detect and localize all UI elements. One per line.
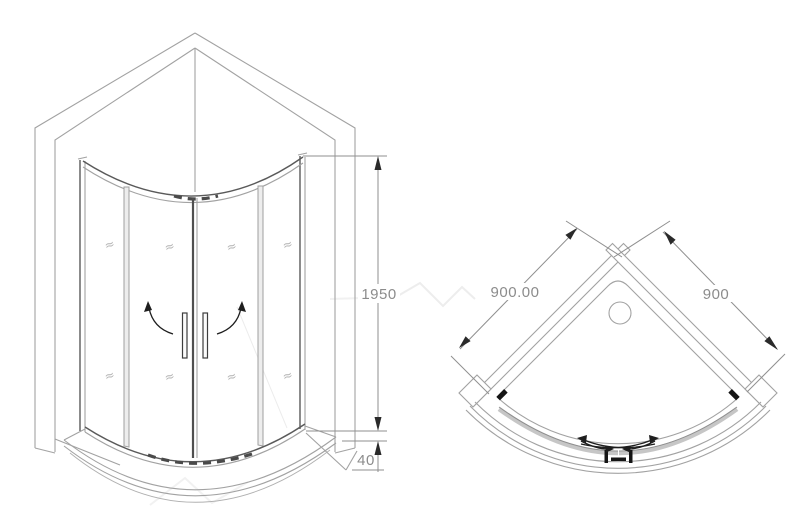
dimension-arrow-up	[375, 441, 382, 455]
glass-mark-icon: ≈	[103, 236, 117, 252]
glass-mark-icon: ≈	[281, 367, 295, 383]
watermark	[150, 283, 475, 505]
plan-left-wall	[468, 244, 631, 407]
door-swing-arrow-left	[149, 308, 173, 334]
right-wall-inner-edge	[195, 48, 335, 452]
width-right-dimension-label: 900	[703, 286, 730, 303]
glass-mark-icon: ≈	[281, 236, 295, 252]
front-view: ≈ ≈ ≈ ≈ ≈ ≈ ≈ ≈ 1950	[35, 33, 400, 502]
glass-mark-icon: ≈	[103, 367, 117, 383]
floor-line-left	[55, 439, 120, 465]
dimension-tray-height: 40	[306, 431, 387, 472]
drain-icon	[609, 302, 631, 324]
plan-left-door	[499, 409, 618, 453]
right-wall-outer-edge	[195, 33, 355, 448]
dimension-width-left: 900.00	[451, 221, 622, 394]
glass-mark-icon: ≈	[225, 368, 239, 384]
tray-edge	[64, 437, 336, 490]
dimension-arrow-up	[375, 156, 382, 170]
tray-inner-arc	[497, 397, 739, 444]
height-dimension-label: 1950	[361, 286, 396, 303]
plan-view: 900.00 900	[451, 221, 785, 473]
plan-handle-bar	[611, 458, 626, 462]
right-door-handle	[203, 313, 208, 358]
panel-divider-right	[258, 186, 263, 446]
door-swing-arrow-right	[217, 308, 241, 334]
top-rail	[83, 157, 303, 196]
glass-mark-icon: ≈	[163, 238, 177, 254]
glass-mark-icon: ≈	[225, 238, 239, 254]
width-left-dimension-label: 900.00	[491, 284, 540, 301]
glass-mark-icon: ≈	[163, 368, 177, 384]
door-swing-arrows	[144, 301, 246, 334]
plan-walls	[459, 244, 777, 408]
dimension-arrow	[459, 336, 471, 348]
shower-enclosure-drawing: ≈ ≈ ≈ ≈ ≈ ≈ ≈ ≈ 1950	[0, 0, 800, 522]
dimension-height: 1950	[303, 156, 400, 431]
walls	[35, 33, 357, 470]
tray-height-dimension-label: 40	[357, 452, 375, 469]
dimension-arrow-down	[375, 417, 382, 431]
panel-divider-left	[124, 187, 129, 447]
door-handles	[183, 313, 208, 358]
left-door-handle	[183, 313, 188, 358]
technical-drawing-page: ≈ ≈ ≈ ≈ ≈ ≈ ≈ ≈ 1950	[0, 0, 800, 522]
plan-right-wall	[606, 244, 769, 407]
glass-marks: ≈ ≈ ≈ ≈ ≈ ≈ ≈ ≈	[103, 236, 295, 384]
plan-tray	[466, 281, 770, 473]
bottom-rail	[85, 424, 305, 462]
enclosure-frame	[78, 153, 307, 458]
dimension-arrow	[565, 228, 577, 240]
dimension-width-right: 900	[614, 221, 785, 392]
tray-front	[64, 424, 336, 502]
plan-doors	[496, 389, 739, 463]
